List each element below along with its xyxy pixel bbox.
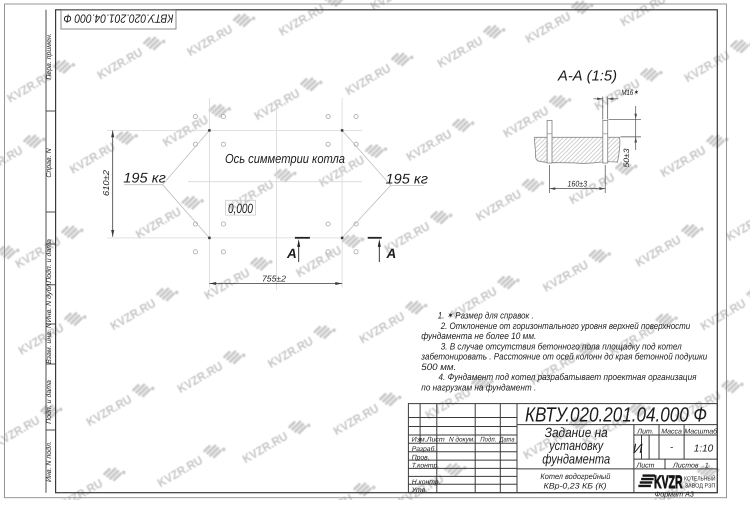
svg-text:160±3: 160±3 bbox=[568, 180, 588, 189]
svg-text:50±3: 50±3 bbox=[622, 148, 631, 168]
svg-text:Подп. и дата: Подп. и дата bbox=[45, 380, 53, 424]
svg-text:Инв. N подл.: Инв. N подл. bbox=[45, 441, 53, 482]
svg-text:И: И bbox=[633, 441, 643, 456]
svg-text:М16✶: М16✶ bbox=[621, 88, 638, 97]
svg-text:А: А bbox=[286, 246, 297, 261]
svg-text:Лит.: Лит. bbox=[636, 429, 653, 436]
svg-text:Справ. N: Справ. N bbox=[46, 147, 53, 177]
svg-text:-: - bbox=[670, 442, 673, 453]
svg-text:Подп. и дата: Подп. и дата bbox=[45, 239, 53, 283]
svg-text:Инв. N дубл.: Инв. N дубл. bbox=[45, 282, 53, 323]
svg-text:Масштаб: Масштаб bbox=[684, 428, 718, 436]
svg-text:фундамента: фундамента bbox=[542, 452, 610, 467]
svg-text:195 кг: 195 кг bbox=[123, 170, 166, 186]
svg-text:Лист: Лист bbox=[635, 462, 654, 469]
svg-text:Формат А3: Формат А3 bbox=[655, 490, 694, 499]
svg-text:2. Отклонение от горизонтальн: 2. Отклонение от горизонтального уровня … bbox=[440, 321, 690, 331]
svg-text:Перв. примен.: Перв. примен. bbox=[46, 33, 53, 80]
svg-text:КВТУ.020.201.04.000 Ф: КВТУ.020.201.04.000 Ф bbox=[525, 403, 707, 426]
svg-text:N докум.: N докум. bbox=[449, 436, 475, 443]
svg-text:500 мм.: 500 мм. bbox=[421, 362, 456, 372]
svg-text:Н.контр.: Н.контр. bbox=[412, 479, 441, 486]
svg-text:Подп.: Подп. bbox=[480, 436, 496, 443]
svg-text:Взам. инв. N: Взам. инв. N bbox=[46, 322, 53, 364]
svg-text:Дата: Дата bbox=[499, 436, 515, 443]
svg-text:3. В случае отсутствия бетонн: 3. В случае отсутствия бетонного пола пл… bbox=[441, 341, 683, 351]
svg-text:КВТУ.020.201.04.000 Ф: КВТУ.020.201.04.000 Ф bbox=[63, 11, 173, 25]
svg-text:по нагрузкам на фундамент .: по нагрузкам на фундамент . bbox=[421, 382, 536, 392]
svg-text:1. ✶ Размер для справок .: 1. ✶ Размер для справок . bbox=[438, 311, 534, 321]
svg-text:забетонировать . Расстояние от: забетонировать . Расстояние от осей коло… bbox=[420, 352, 707, 362]
svg-text:КОТЕЛЬНЫЙ: КОТЕЛЬНЫЙ bbox=[684, 474, 716, 482]
svg-text:610±2: 610±2 bbox=[101, 170, 111, 196]
svg-text:1: 1 bbox=[705, 462, 709, 469]
svg-text:Листов: Листов bbox=[672, 462, 699, 469]
svg-text:Разраб.: Разраб. bbox=[412, 446, 437, 453]
svg-text:Т.контр.: Т.контр. bbox=[412, 463, 440, 470]
svg-text:Котел водогрейный: Котел водогрейный bbox=[540, 472, 610, 481]
svg-text:А: А bbox=[386, 246, 397, 261]
svg-text:1:10: 1:10 bbox=[694, 444, 714, 455]
svg-text:195 кг: 195 кг bbox=[386, 171, 429, 187]
svg-text:Ось симметрии котла: Ось симметрии котла bbox=[225, 151, 345, 166]
svg-text:0,000: 0,000 bbox=[228, 201, 253, 216]
svg-text:Масса: Масса bbox=[661, 429, 682, 436]
svg-text:4. Фундамент под котел разраб: 4. Фундамент под котел разрабатывает про… bbox=[439, 372, 697, 382]
svg-text:КВр-0,23 КБ (К): КВр-0,23 КБ (К) bbox=[544, 481, 607, 490]
svg-text:Пров.: Пров. bbox=[412, 454, 430, 461]
svg-text:Утв.: Утв. bbox=[411, 487, 428, 494]
svg-text:755±2: 755±2 bbox=[262, 274, 286, 284]
svg-text:фундамента не более 10 мм.: фундамента не более 10 мм. bbox=[421, 331, 536, 341]
svg-text:Изм.Лист: Изм.Лист bbox=[412, 436, 445, 443]
svg-text:А-А (1:5): А-А (1:5) bbox=[557, 69, 617, 85]
